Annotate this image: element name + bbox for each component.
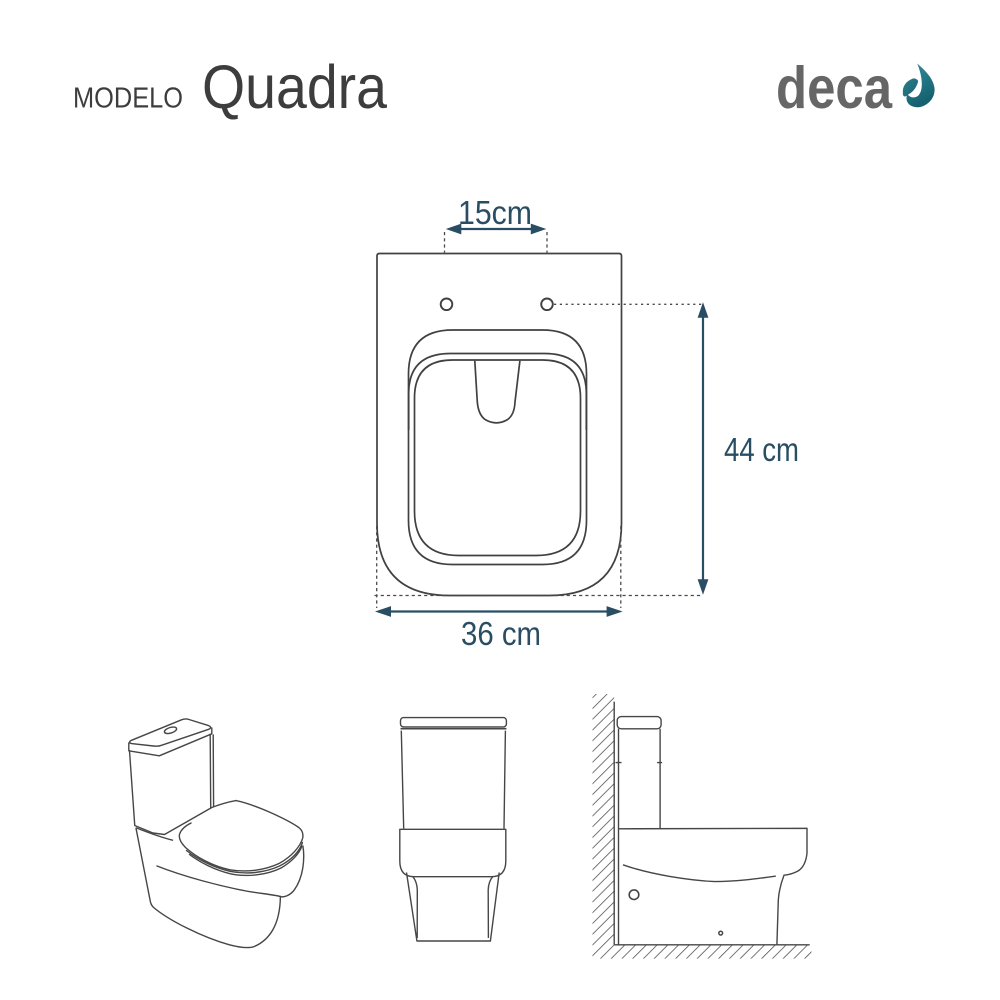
svg-text:44 cm: 44 cm <box>724 431 799 468</box>
svg-text:deca: deca <box>776 55 893 121</box>
svg-text:Quadra: Quadra <box>202 53 387 121</box>
svg-text:15cm: 15cm <box>458 194 532 231</box>
svg-text:36 cm: 36 cm <box>461 615 541 652</box>
svg-text:MODELO: MODELO <box>73 83 183 115</box>
